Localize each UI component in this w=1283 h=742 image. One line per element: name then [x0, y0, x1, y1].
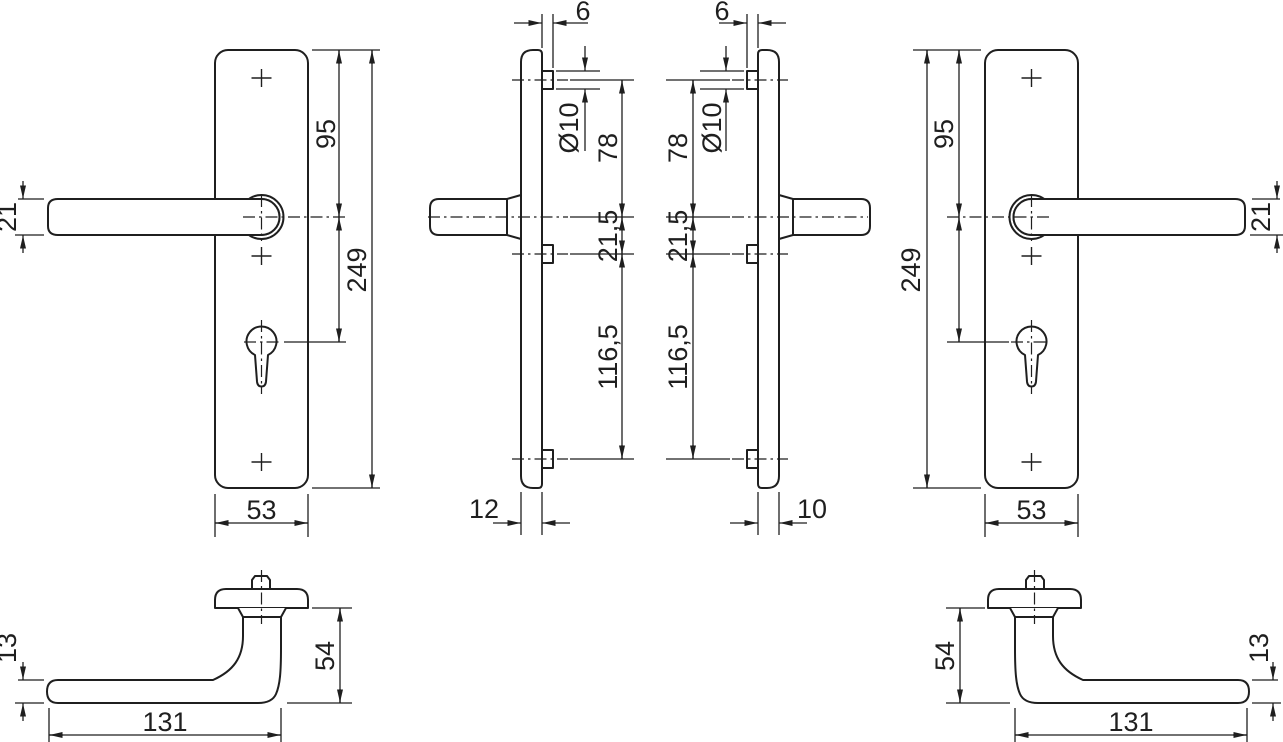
backplate-outline — [215, 50, 308, 488]
dim-plate-width: 53 — [1016, 495, 1046, 525]
dimension-lines — [693, 14, 807, 535]
dim-stud-protrusion: 6 — [714, 0, 729, 26]
mounting-studs — [542, 71, 553, 468]
dim-handle-height: 54 — [930, 641, 960, 671]
dim-lever-to-mid-stud: 21,5 — [663, 210, 693, 263]
dim-grip-thickness: 13 — [1244, 633, 1274, 663]
dim-plate-length: 249 — [896, 247, 926, 292]
dim-grip-thickness: 13 — [0, 633, 22, 663]
dim-stud-diameter: Ø10 — [554, 102, 584, 153]
technical-drawing-canvas: 21 95 249 53 — [0, 0, 1283, 742]
screw-marks — [252, 69, 272, 471]
dim-handle-length: 131 — [142, 707, 187, 737]
plate-profile — [521, 50, 542, 488]
dim-plate-length: 249 — [342, 247, 372, 292]
dim-plate-thickness: 10 — [797, 494, 827, 524]
handle-body — [47, 608, 286, 703]
dim-mid-to-bottom-stud: 116,5 — [663, 324, 693, 390]
dim-handle-length: 131 — [1108, 707, 1153, 737]
backplate-outline — [985, 50, 1078, 488]
dim-lever-thickness: 21 — [1246, 202, 1276, 232]
dim-top-to-lever: 95 — [311, 119, 341, 149]
dim-top-to-lever: 95 — [929, 119, 959, 149]
dim-lever-to-mid-stud: 21,5 — [593, 210, 623, 263]
mounting-studs — [747, 71, 758, 468]
cylinder-keyhole — [1016, 326, 1046, 386]
view-side-plate-left: 6 Ø10 78 21,5 116,5 12 — [428, 0, 634, 535]
view-front-plate-left: 21 95 249 53 — [0, 50, 380, 537]
dimension-lines — [493, 14, 622, 535]
dim-stud-to-lever: 78 — [593, 133, 623, 163]
dimension-lines — [913, 50, 1283, 537]
plate-profile — [758, 50, 779, 488]
cylinder-keyhole — [247, 326, 277, 386]
dim-plate-thickness: 12 — [469, 494, 499, 524]
dim-lever-thickness: 21 — [0, 202, 22, 232]
dim-stud-protrusion: 6 — [575, 0, 590, 26]
dim-mid-to-bottom-stud: 116,5 — [593, 324, 623, 390]
view-side-plate-right: 6 Ø10 78 21,5 116,5 10 — [663, 0, 870, 535]
dim-stud-diameter: Ø10 — [697, 102, 727, 153]
view-handle-right: 13 54 131 — [930, 570, 1281, 742]
dim-plate-width: 53 — [246, 495, 276, 525]
technical-drawing-page: 21 95 249 53 — [0, 0, 1283, 742]
view-handle-left: 13 54 131 — [0, 570, 352, 742]
screw-marks — [1022, 69, 1042, 471]
dim-handle-height: 54 — [310, 641, 340, 671]
view-front-plate-right: 95 249 21 53 — [896, 50, 1283, 537]
dim-stud-to-lever: 78 — [663, 133, 693, 163]
handle-body — [1010, 608, 1249, 703]
